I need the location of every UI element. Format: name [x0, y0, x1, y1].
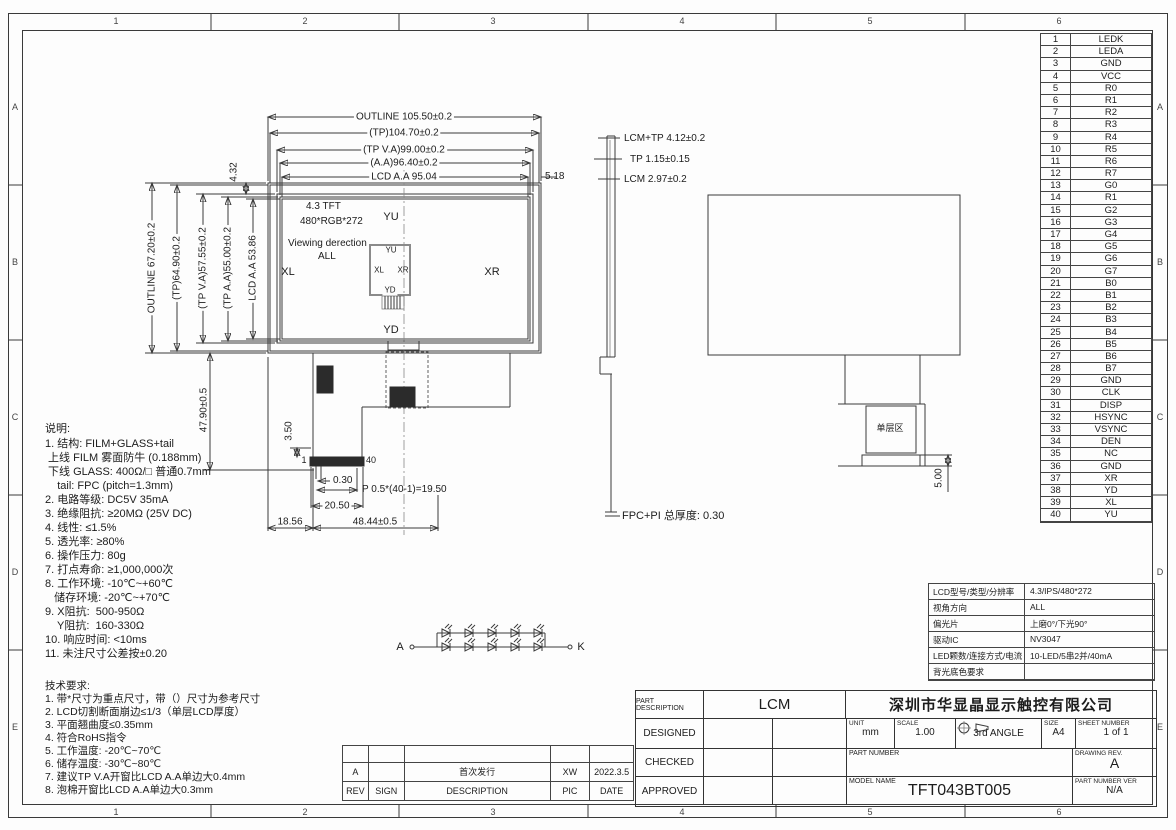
notes-lines: 1. 结构: FILM+GLASS+tail 上线 FILM 雾面防牛 (0.1…	[45, 437, 305, 661]
tech-line: 8. 泡棉开窗比LCD A.A单边大0.3mm	[45, 784, 345, 797]
spec-label: 背光底色要求	[929, 664, 1025, 680]
zone-row: C	[1157, 412, 1164, 422]
single-layer-zone-label: 单层区	[876, 424, 903, 434]
spec-value: 10-LED/5串2并/40mA	[1025, 648, 1154, 664]
dim-outline-height: OUTLINE 67.20±0.2	[147, 221, 158, 316]
approved-date-cell	[773, 777, 847, 805]
tech-line: 5. 工作温度: -20℃~70℃	[45, 745, 345, 758]
title-block: PART DESCRIPTION LCM 深圳市华显晶显示触控有限公司 DESI…	[635, 690, 1157, 807]
checked-sign-cell	[704, 749, 773, 776]
zone-col: 5	[867, 16, 872, 26]
tech-line: 4. 符合RoHS指令	[45, 732, 345, 745]
pin-number: 38	[1041, 485, 1071, 497]
zone-row: B	[12, 257, 18, 267]
panel-type: 4.3 TFT	[306, 201, 341, 212]
pin-name: GND	[1071, 58, 1151, 70]
pin-name: DEN	[1071, 436, 1151, 448]
revision-table: A 首次发行 XW 2022.3.5 REV SIGN DESCRIPTION …	[342, 745, 634, 801]
rev-empty-cell	[551, 746, 591, 763]
designed-label: DESIGNED	[636, 719, 704, 748]
pin-name: G7	[1071, 266, 1151, 278]
pin-number: 35	[1041, 448, 1071, 460]
pin-name: R4	[1071, 132, 1151, 144]
pin-name: G2	[1071, 205, 1151, 217]
pin-name: YU	[1071, 509, 1151, 521]
designed-date-cell	[773, 719, 847, 748]
spec-label: 驱动IC	[929, 632, 1025, 648]
pin-name: G3	[1071, 217, 1151, 229]
pin-name: XR	[1071, 473, 1151, 485]
zone-row: D	[12, 567, 19, 577]
pin-name: B4	[1071, 327, 1151, 339]
viewing-direction: Viewing derection	[288, 238, 367, 249]
pin-number: 7	[1041, 107, 1071, 119]
part-number-label: PART NUMBER	[849, 750, 899, 757]
pin-name: B7	[1071, 363, 1151, 375]
note-line: 6. 操作压力: 80g	[45, 549, 305, 563]
part-description-label: PART DESCRIPTION	[636, 691, 704, 718]
pin-number: 23	[1041, 302, 1071, 314]
projection-cell: 3rd ANGLE	[956, 719, 1042, 748]
pin-name: B3	[1071, 314, 1151, 326]
pin-number: 33	[1041, 424, 1071, 436]
pin-name: R1	[1071, 95, 1151, 107]
checked-label: CHECKED	[636, 749, 704, 776]
pin-name: NC	[1071, 448, 1151, 460]
size-label: SIZE	[1044, 720, 1058, 727]
pin-number: 39	[1041, 497, 1071, 509]
pin-name: R1	[1071, 192, 1151, 204]
pin-number: 2	[1041, 46, 1071, 58]
zone-col: 4	[679, 16, 684, 26]
drawing-rev-label: DRAWING REV.	[1075, 750, 1123, 757]
zone-row: B	[1157, 257, 1163, 267]
viewing-direction-value: ALL	[318, 251, 336, 262]
note-line: 4. 线性: ≤1.5%	[45, 521, 305, 535]
rev-sign-value	[369, 763, 405, 782]
pin-number: 40	[1041, 509, 1071, 521]
spec-label: LCD型号/类型/分辨率	[929, 584, 1025, 600]
description-header: DESCRIPTION	[405, 782, 551, 800]
zone-col: 4	[679, 807, 684, 817]
pin-number: 37	[1041, 473, 1071, 485]
note-line: 8. 工作环境: -10℃~+60℃	[45, 577, 305, 591]
dim-tp-width: (TP)104.70±0.2	[367, 128, 440, 139]
tech-line: 3. 平面翘曲度≤0.35mm	[45, 719, 345, 732]
size-cell: SIZE A4	[1042, 719, 1076, 748]
notes-block: 说明: 1. 结构: FILM+GLASS+tail 上线 FILM 雾面防牛 …	[45, 422, 305, 661]
tech-requirements-block: 技术要求: 1. 带*尺寸为重点尺寸，带（）尺寸为参考尺寸2. LCD切割断面崩…	[45, 680, 345, 797]
dim-tpva-width: (TP V.A)99.00±0.2	[361, 145, 447, 156]
dim-right-gap: 5.18	[545, 171, 564, 182]
pin-number: 10	[1041, 144, 1071, 156]
note-line: 上线 FILM 雾面防牛 (0.188mm)	[45, 451, 305, 465]
pin-name: B1	[1071, 290, 1151, 302]
pin-name: CLK	[1071, 387, 1151, 399]
spec-table: LCD型号/类型/分辨率 4.3/IPS/480*272 视角方向 ALL 偏光…	[928, 583, 1155, 681]
pin-number: 20	[1041, 266, 1071, 278]
zone-row: A	[1157, 102, 1163, 112]
pin-number: 8	[1041, 119, 1071, 131]
pin-name: HSYNC	[1071, 412, 1151, 424]
company-name: 深圳市华显晶显示触控有限公司	[846, 691, 1156, 718]
pin-name: GND	[1071, 461, 1151, 473]
drawing-sheet: 1 2 3 4 5 6 1 2 3 4 5 6 A B C D E A B C …	[0, 0, 1176, 830]
zone-col: 5	[867, 807, 872, 817]
dim-tpva-height: (TP V.A)57.55±0.2	[198, 225, 209, 311]
pin-table: 1 LEDK 2 LEDA 3 GND 4 VCC 5 R0 6 R1 7 R2…	[1040, 33, 1152, 523]
dim-top-gap: 4.32	[229, 162, 240, 181]
touch-label-yd: YD	[383, 324, 398, 336]
pin-name: G5	[1071, 241, 1151, 253]
tech-line: 6. 储存温度: -30℃~80℃	[45, 758, 345, 771]
pin-number: 31	[1041, 400, 1071, 412]
pin-number: 25	[1041, 327, 1071, 339]
pic-header: PIC	[551, 782, 591, 800]
rev-empty-cell	[405, 746, 551, 763]
touch-label-xl: XL	[281, 266, 294, 278]
inner-label-xl: XL	[374, 267, 384, 276]
pin-name: XL	[1071, 497, 1151, 509]
pin-number: 30	[1041, 387, 1071, 399]
pin-name: LEDA	[1071, 46, 1151, 58]
inner-label-yu: YU	[383, 247, 398, 256]
pin-number: 16	[1041, 217, 1071, 229]
note-line: 下线 GLASS: 400Ω/□ 普通0.7mm	[45, 465, 305, 479]
spec-label: LED颗数/连接方式/电流	[929, 648, 1025, 664]
dim-lcm-thickness: LCM 2.97±0.2	[624, 174, 687, 185]
pin-name: R0	[1071, 83, 1151, 95]
zone-col: 3	[490, 807, 495, 817]
pin-number: 29	[1041, 375, 1071, 387]
checked-date-cell	[773, 749, 847, 776]
zone-col: 1	[113, 16, 118, 26]
tech-lines: 1. 带*尺寸为重点尺寸，带（）尺寸为参考尺寸2. LCD切割断面崩边≤1/3（…	[45, 693, 345, 797]
dim-tp-thickness: TP 1.15±0.15	[630, 154, 690, 165]
unit-label: UNIT	[849, 720, 864, 727]
approved-label: APPROVED	[636, 777, 704, 805]
pin-name: GND	[1071, 375, 1151, 387]
spec-label: 偏光片	[929, 616, 1025, 632]
zone-col: 1	[113, 807, 118, 817]
zone-col: 2	[302, 807, 307, 817]
pin-name: LEDK	[1071, 34, 1151, 46]
rev-empty-cell	[590, 746, 633, 763]
pin-number: 5	[1041, 83, 1071, 95]
inner-label-yd: YD	[382, 287, 397, 296]
zone-row: A	[12, 102, 18, 112]
pin-name: R5	[1071, 144, 1151, 156]
approved-sign-cell	[704, 777, 773, 805]
date-header: DATE	[590, 782, 633, 800]
note-line: 7. 打点寿命: ≥1,000,000次	[45, 563, 305, 577]
rev-description-value: 首次发行	[405, 763, 551, 782]
pin-number: 36	[1041, 461, 1071, 473]
pin-number: 22	[1041, 290, 1071, 302]
dim-lcdaa-height: LCD A.A 53.86	[248, 233, 259, 303]
dim-20-50: 20.50	[322, 501, 351, 512]
drawing-rev-cell: DRAWING REV. A	[1073, 749, 1156, 776]
zone-row: E	[1157, 722, 1163, 732]
pin-number: 26	[1041, 339, 1071, 351]
panel-resolution: 480*RGB*272	[300, 216, 363, 227]
pin-name: B2	[1071, 302, 1151, 314]
tech-line: 7. 建议TP V.A开窗比LCD A.A单边大0.4mm	[45, 771, 345, 784]
pin-name: R7	[1071, 168, 1151, 180]
spec-label: 视角方向	[929, 600, 1025, 616]
scale-label: SCALE	[897, 720, 918, 727]
note-line: 5. 透光率: ≥80%	[45, 535, 305, 549]
dim-outline-width: OUTLINE 105.50±0.2	[354, 112, 454, 123]
tech-line: 1. 带*尺寸为重点尺寸，带（）尺寸为参考尺寸	[45, 693, 345, 706]
sheet-number-label: SHEET NUMBER	[1078, 720, 1130, 727]
sign-header: SIGN	[369, 782, 405, 800]
pin-number: 3	[1041, 58, 1071, 70]
dim-tp-height: (TP)64.90±0.2	[172, 234, 183, 302]
unit-cell: UNIT mm	[847, 719, 895, 748]
dim-lcm-tp-thickness: LCM+TP 4.12±0.2	[624, 133, 705, 144]
dim-5-00: 5.00	[934, 468, 945, 487]
pin-name: R3	[1071, 119, 1151, 131]
tech-line: 2. LCD切割断面崩边≤1/3（单层LCD厚度）	[45, 706, 345, 719]
note-line: 2. 电路等级: DC5V 35mA	[45, 493, 305, 507]
dim-pitch: P 0.5*(40-1)=19.50	[362, 484, 447, 495]
zone-row: E	[12, 722, 18, 732]
led-cathode-label: K	[577, 641, 584, 653]
spec-value: NV3047	[1025, 632, 1154, 648]
pin-number: 19	[1041, 253, 1071, 265]
note-line: 3. 绝缘阻抗: ≥20MΩ (25V DC)	[45, 507, 305, 521]
touch-label-xr: XR	[484, 266, 499, 278]
pin-number: 17	[1041, 229, 1071, 241]
touch-label-yu: YU	[383, 211, 398, 223]
pin-number: 13	[1041, 180, 1071, 192]
spec-value	[1025, 664, 1154, 680]
notes-title: 说明:	[45, 422, 305, 436]
pin-number: 27	[1041, 351, 1071, 363]
zone-col: 3	[490, 16, 495, 26]
pin-number: 32	[1041, 412, 1071, 424]
pin40-label: 40	[366, 456, 376, 466]
pin-number: 14	[1041, 192, 1071, 204]
pin-name: G0	[1071, 180, 1151, 192]
pin-name: VSYNC	[1071, 424, 1151, 436]
dim-0-30: 0.30	[333, 475, 352, 486]
zone-row: C	[12, 412, 19, 422]
part-number-ver-label: PART NUMBER VER	[1075, 778, 1137, 785]
note-line: 1. 结构: FILM+GLASS+tail	[45, 437, 305, 451]
pin-name: R2	[1071, 107, 1151, 119]
sheet-number-cell: SHEET NUMBER 1 of 1	[1076, 719, 1156, 748]
pin-number: 34	[1041, 436, 1071, 448]
rev-empty-cell	[369, 746, 405, 763]
pin-number: 15	[1041, 205, 1071, 217]
note-line: 11. 未注尺寸公差按±0.20	[45, 647, 305, 661]
pin-name: B0	[1071, 278, 1151, 290]
note-line: 9. X阻抗: 500-950Ω	[45, 605, 305, 619]
part-number-ver-cell: PART NUMBER VER N/A	[1073, 777, 1156, 805]
pin-number: 6	[1041, 95, 1071, 107]
zone-col: 6	[1056, 16, 1061, 26]
pin-name: G4	[1071, 229, 1151, 241]
zone-row: D	[1157, 567, 1164, 577]
note-line: tail: FPC (pitch=1.3mm)	[45, 479, 305, 493]
part-description-value: LCM	[704, 691, 846, 718]
led-anode-label: A	[396, 641, 403, 653]
rev-header: REV	[343, 782, 369, 800]
dim-lcdaa-width: LCD A.A 95.04	[369, 172, 439, 183]
fpc-thickness-note: FPC+PI 总厚度: 0.30	[622, 510, 724, 522]
part-number-cell: PART NUMBER	[847, 749, 1073, 776]
zone-col: 6	[1056, 807, 1061, 817]
pin-name: B5	[1071, 339, 1151, 351]
pin-name: B6	[1071, 351, 1151, 363]
pin-name: R6	[1071, 156, 1151, 168]
rev-value: A	[343, 763, 369, 782]
pin-number: 24	[1041, 314, 1071, 326]
dim-48-44: 48.44±0.5	[351, 517, 399, 528]
third-angle-symbol	[956, 719, 990, 737]
zone-col: 2	[302, 16, 307, 26]
model-name-cell: MODEL NAME TFT043BT005	[847, 777, 1073, 805]
dim-aa-width: (A.A)96.40±0.2	[368, 158, 439, 169]
inner-label-xr: XR	[397, 267, 408, 276]
dim-tpaa-height: (TP A.A)55.00±0.2	[223, 225, 234, 311]
spec-value: ALL	[1025, 600, 1154, 616]
tech-title: 技术要求:	[45, 680, 345, 693]
pin-name: DISP	[1071, 400, 1151, 412]
pin-number: 11	[1041, 156, 1071, 168]
pin-name: VCC	[1071, 71, 1151, 83]
rev-date-value: 2022.3.5	[590, 763, 633, 782]
note-line: 储存环境: -20℃~+70℃	[45, 591, 305, 605]
rev-pic-value: XW	[551, 763, 591, 782]
scale-cell: SCALE 1.00	[895, 719, 956, 748]
pin-number: 28	[1041, 363, 1071, 375]
pin-number: 1	[1041, 34, 1071, 46]
pin-number: 9	[1041, 132, 1071, 144]
note-line: Y阻抗: 160-330Ω	[45, 619, 305, 633]
pin-number: 12	[1041, 168, 1071, 180]
model-name-label: MODEL NAME	[849, 778, 896, 785]
rev-empty-cell	[343, 746, 369, 763]
spec-value: 4.3/IPS/480*272	[1025, 584, 1154, 600]
note-line: 10. 响应时间: <10ms	[45, 633, 305, 647]
spec-value: 上磨0°/下光90°	[1025, 616, 1154, 632]
pin-name: YD	[1071, 485, 1151, 497]
pin-number: 21	[1041, 278, 1071, 290]
designed-sign-cell	[704, 719, 773, 748]
pin-name: G6	[1071, 253, 1151, 265]
pin-number: 18	[1041, 241, 1071, 253]
pin-number: 4	[1041, 71, 1071, 83]
